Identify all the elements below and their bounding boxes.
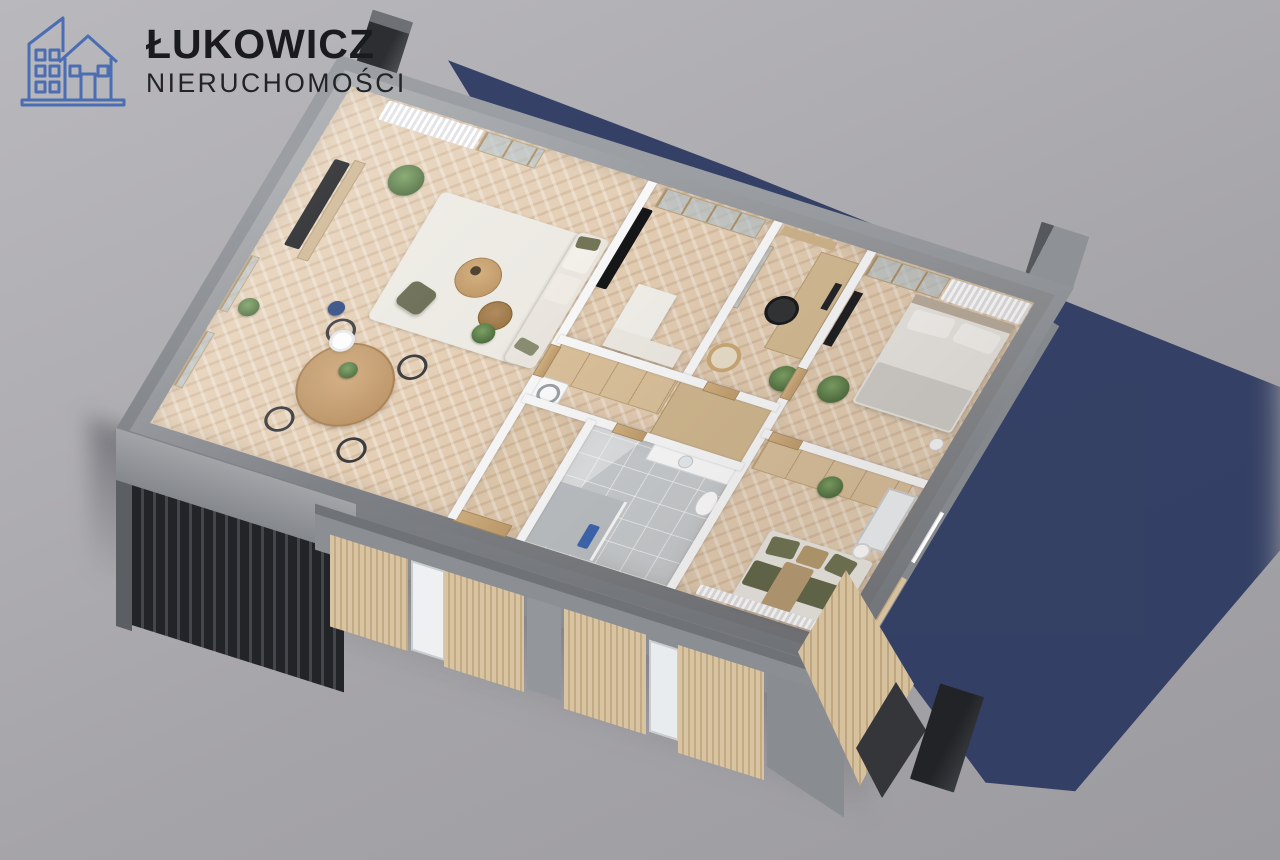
render-canvas: ŁUKOWICZ NIERUCHOMOŚCI [0, 0, 1280, 860]
buildings-outline-icon [14, 8, 132, 113]
brand-name: ŁUKOWICZ [146, 22, 407, 68]
entrance-door [411, 560, 445, 661]
brand-logo: ŁUKOWICZ NIERUCHOMOŚCI [14, 8, 407, 113]
facade-window-sliver [649, 640, 679, 742]
facade-gray-panel [527, 597, 561, 700]
brand-subtitle: NIERUCHOMOŚCI [146, 68, 407, 98]
logo-text: ŁUKOWICZ NIERUCHOMOŚCI [146, 8, 407, 98]
